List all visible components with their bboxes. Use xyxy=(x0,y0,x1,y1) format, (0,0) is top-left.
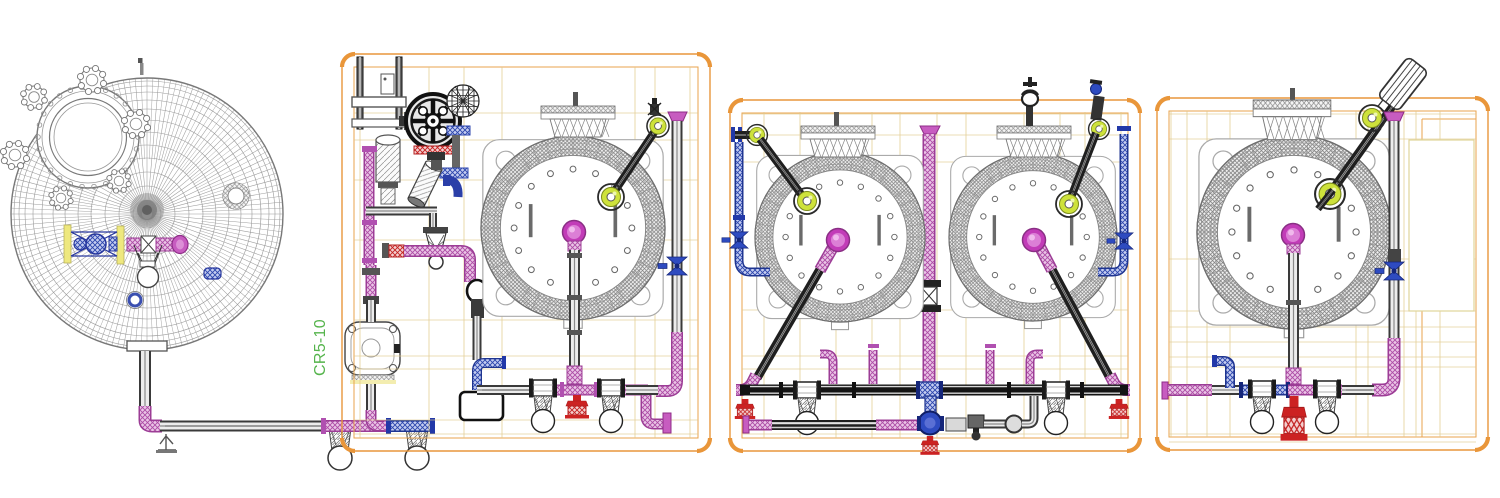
svg-text:CR5-10: CR5-10 xyxy=(312,319,329,376)
